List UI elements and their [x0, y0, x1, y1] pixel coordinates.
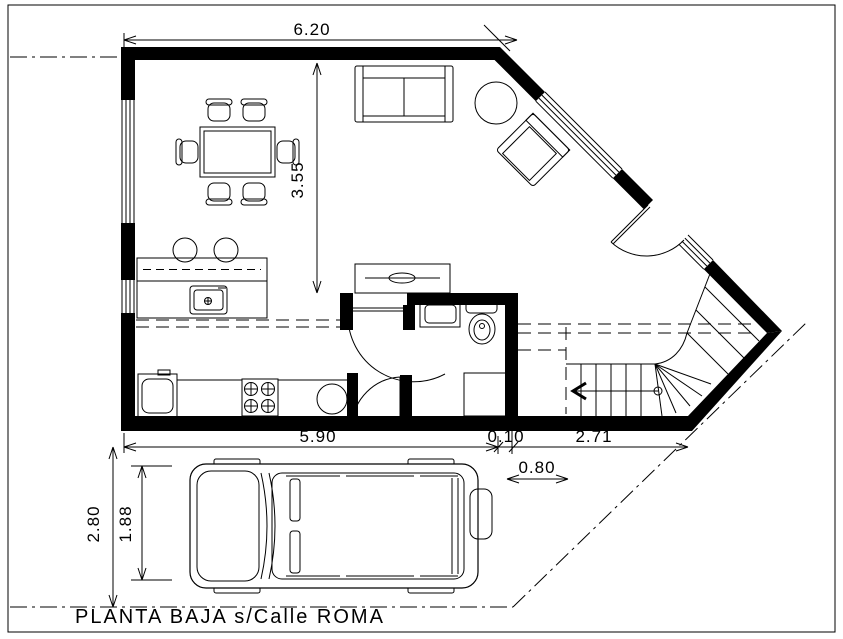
kitchen-basin	[317, 384, 347, 414]
car	[190, 459, 492, 593]
entry-door	[611, 205, 684, 256]
fridge	[138, 370, 177, 417]
hall-door	[348, 308, 445, 382]
dim-living-depth-label: 3.55	[288, 161, 307, 198]
plan-title: PLANTA BAJA s/Calle ROMA	[75, 606, 385, 628]
toilet	[466, 299, 497, 344]
sofa	[355, 66, 453, 122]
dim-car-width-label: 1.88	[116, 505, 135, 542]
stair-direction-arrow	[573, 383, 662, 399]
dim-stair-bay-label: 2.71	[575, 427, 612, 446]
dimension-driveway-depth: 2.80	[84, 447, 117, 607]
left-window-upper	[122, 100, 134, 223]
dimension-living-depth: 3.55	[288, 63, 321, 293]
dim-bottom-main-label: 5.90	[299, 427, 336, 446]
dimension-path-width: 0.80	[507, 458, 568, 483]
dim-driveway-depth-label: 2.80	[84, 505, 103, 542]
dimension-top-width: 6.20	[124, 20, 517, 51]
sideboard	[355, 264, 450, 293]
shower-tray	[464, 373, 506, 416]
dim-wall-offset-label: 0.10	[487, 427, 524, 446]
side-table	[475, 82, 517, 124]
dim-top-width-label: 6.20	[293, 20, 330, 39]
diagonal-window	[536, 92, 622, 178]
kitchen-sink	[190, 286, 227, 314]
dimension-car-width: 1.88	[116, 466, 172, 580]
stove	[242, 379, 278, 416]
dining-set	[176, 99, 299, 205]
floor-plan-canvas: 6.20 3.55 5.90 0.10 2.71 0.80 2.80	[0, 0, 843, 639]
left-window-lower	[122, 280, 134, 313]
car-body	[190, 464, 478, 588]
dimension-bottom-row: 5.90 0.10 2.71	[124, 427, 688, 454]
breakfast-bar	[137, 258, 267, 318]
floor-plan-sheet: 6.20 3.55 5.90 0.10 2.71 0.80 2.80	[0, 0, 843, 639]
dim-path-width-label: 0.80	[518, 458, 555, 477]
